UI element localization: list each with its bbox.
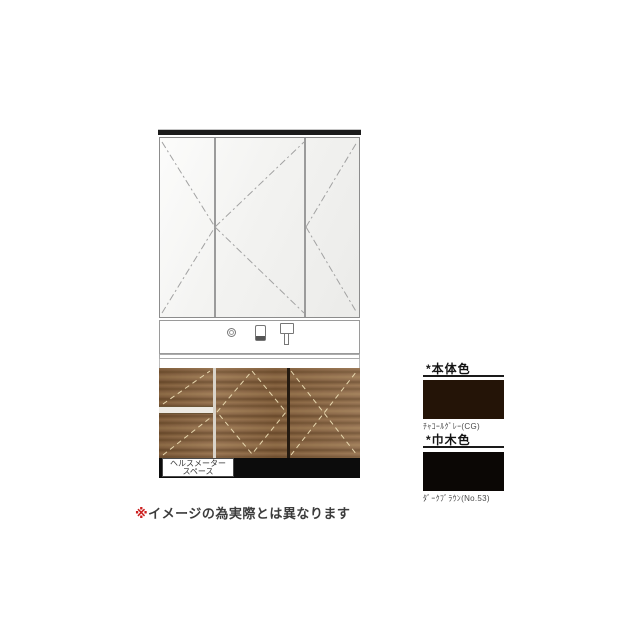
body-color-heading: *本体色 bbox=[423, 363, 504, 377]
counter-under-band bbox=[159, 359, 360, 368]
faucet-icon bbox=[280, 323, 296, 349]
baseboard-color-label: ﾀﾞｰｸﾌﾞﾗｳﾝ(No.53) bbox=[423, 493, 490, 504]
faucet-head bbox=[280, 323, 294, 334]
baseboard-color-heading: *巾木色 bbox=[423, 434, 504, 448]
health-meter-label-line2: スペース bbox=[163, 468, 233, 476]
mirror-cabinet bbox=[159, 137, 360, 318]
outlet-icon bbox=[227, 328, 236, 337]
product-image-page: ヘルスメーター スペース ※イメージの為実際とは異なります *本体色 ﾁｬｺｰﾙ… bbox=[0, 0, 640, 640]
body-color-label: ﾁｬｺｰﾙｸﾞﾚｰ(CG) bbox=[423, 421, 480, 432]
cabinet-top-panel bbox=[158, 129, 361, 135]
cabinet-swing-lines-icon bbox=[159, 368, 360, 458]
health-meter-space-label: ヘルスメーター スペース bbox=[162, 458, 234, 477]
disclaimer-marker: ※ bbox=[135, 506, 148, 521]
body-color-swatch bbox=[423, 380, 504, 419]
disclaimer-note: ※イメージの為実際とは異なります bbox=[135, 503, 350, 522]
faucet-stem bbox=[284, 334, 289, 345]
baseboard-color-swatch bbox=[423, 452, 504, 491]
soap-dispenser-icon bbox=[255, 325, 266, 341]
base-cabinet bbox=[159, 368, 360, 458]
door-swing-lines-icon bbox=[160, 138, 359, 317]
toe-kick-baseboard: ヘルスメーター スペース bbox=[159, 458, 360, 478]
disclaimer-text: イメージの為実際とは異なります bbox=[148, 506, 350, 521]
counter-section bbox=[159, 320, 360, 354]
